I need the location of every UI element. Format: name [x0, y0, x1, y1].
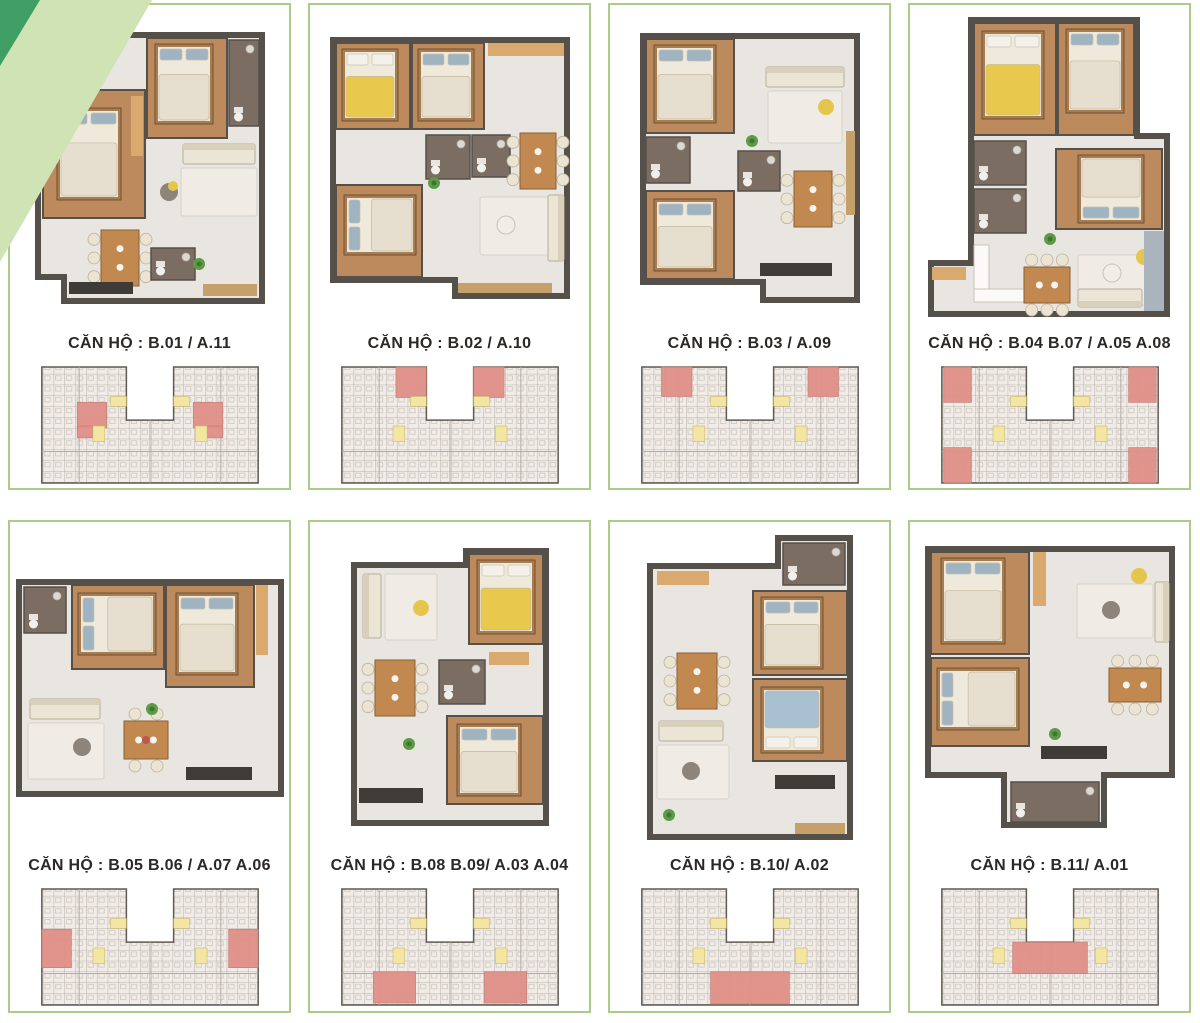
unit-card-b04-b07: CĂN HỘ : B.04 B.07 / A.05 A.08 [908, 3, 1191, 490]
unit-label: CĂN HỘ : B.02 / A.10 [368, 330, 532, 358]
unit-label: CĂN HỘ : B.01 / A.11 [68, 330, 231, 358]
floor-plan-image [610, 522, 889, 852]
keyplan-image [910, 358, 1189, 488]
unit-label: CĂN HỘ : B.05 B.06 / A.07 A.06 [28, 852, 271, 880]
keyplan-image [610, 358, 889, 488]
unit-card-b02: CĂN HỘ : B.02 / A.10 [308, 3, 591, 490]
floor-plan-image [10, 522, 289, 852]
unit-card-b03: CĂN HỘ : B.03 / A.09 [608, 3, 891, 490]
unit-label: CĂN HỘ : B.10/ A.02 [670, 852, 829, 880]
unit-card-b05-b06: CĂN HỘ : B.05 B.06 / A.07 A.06 [8, 520, 291, 1013]
unit-card-b10: CĂN HỘ : B.10/ A.02 [608, 520, 891, 1013]
unit-label: CĂN HỘ : B.04 B.07 / A.05 A.08 [928, 330, 1171, 358]
keyplan-image [910, 880, 1189, 1011]
floor-plan-image [910, 522, 1189, 852]
keyplan-image [310, 880, 589, 1011]
unit-card-b11: CĂN HỘ : B.11/ A.01 [908, 520, 1191, 1013]
floor-plan-image [310, 522, 589, 852]
floor-plan-image [310, 5, 589, 330]
unit-card-b01: CĂN HỘ : B.01 / A.11 [8, 3, 291, 490]
unit-card-b08-b09: CĂN HỘ : B.08 B.09/ A.03 A.04 [308, 520, 591, 1013]
keyplan-image [310, 358, 589, 488]
floor-plan-image [10, 5, 289, 330]
keyplan-image [10, 880, 289, 1011]
keyplan-image [610, 880, 889, 1011]
floorplan-grid: CĂN HỘ : B.01 / A.11 CĂN HỘ : B.02 / A.1… [8, 3, 1191, 1013]
unit-label: CĂN HỘ : B.08 B.09/ A.03 A.04 [331, 852, 569, 880]
keyplan-image [10, 358, 289, 488]
floor-plan-image [610, 5, 889, 330]
unit-label: CĂN HỘ : B.03 / A.09 [668, 330, 832, 358]
unit-label: CĂN HỘ : B.11/ A.01 [970, 852, 1128, 880]
floor-plan-image [910, 5, 1189, 330]
